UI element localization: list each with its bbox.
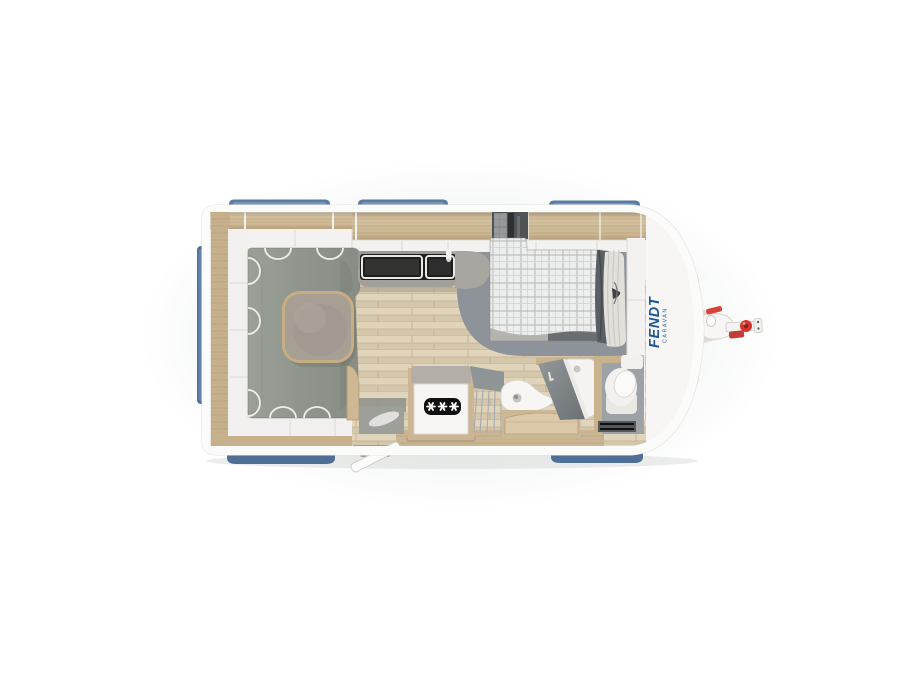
svg-text:CARAVAN: CARAVAN bbox=[663, 307, 669, 343]
svg-text:FENDT: FENDT bbox=[647, 296, 663, 348]
